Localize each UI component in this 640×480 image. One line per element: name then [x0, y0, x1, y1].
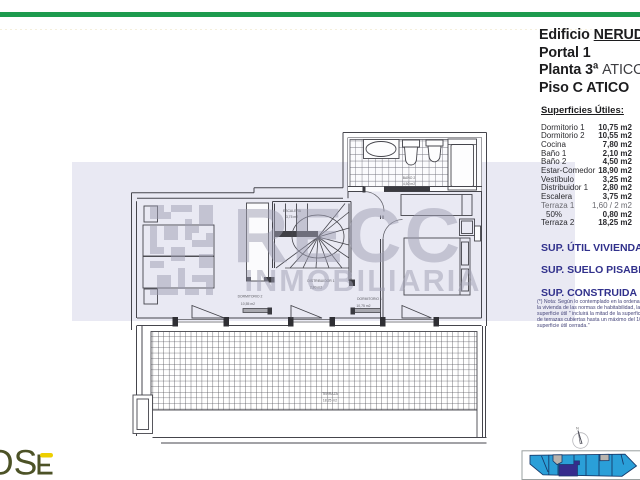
svg-text:OS: OS	[0, 443, 37, 480]
svg-text:N: N	[576, 426, 579, 431]
